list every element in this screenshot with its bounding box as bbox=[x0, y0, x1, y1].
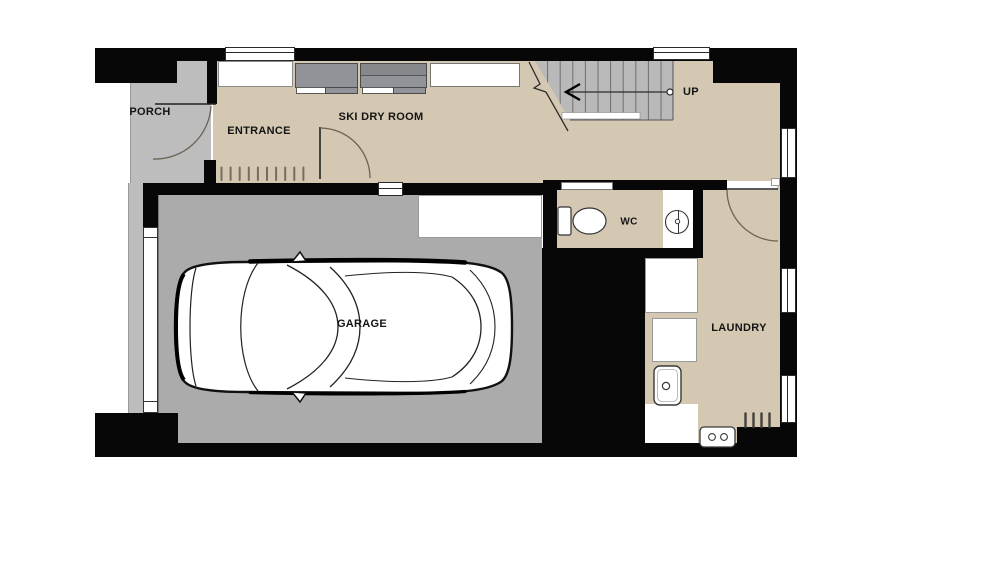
laundry-sink-drain bbox=[662, 382, 669, 389]
plan-linework bbox=[0, 0, 1000, 566]
staircase bbox=[529, 61, 673, 131]
car-mirror-top bbox=[292, 252, 306, 262]
car-mirror-bottom bbox=[292, 392, 306, 402]
toilet-bowl-icon bbox=[573, 208, 606, 234]
laundry-door-swing bbox=[727, 190, 778, 241]
stair-start-marker bbox=[667, 89, 673, 95]
wc-basin-drain bbox=[675, 219, 679, 223]
label-ski-dry-room: SKI DRY ROOM bbox=[339, 111, 424, 123]
label-laundry: LAUNDRY bbox=[711, 322, 766, 334]
label-entrance: ENTRANCE bbox=[227, 125, 291, 137]
stair-landing-strip bbox=[562, 113, 640, 120]
label-up: UP bbox=[683, 86, 699, 98]
laundry-step-hatch bbox=[746, 414, 770, 428]
floor-plan: PORCH ENTRANCE SKI DRY ROOM UP WC GARAGE… bbox=[0, 0, 1000, 566]
ski-room-door-swing bbox=[320, 128, 370, 178]
laundry-unit-icon bbox=[700, 427, 735, 447]
label-wc: WC bbox=[620, 217, 637, 228]
laundry-fixtures bbox=[654, 366, 770, 447]
toilet-tank-icon bbox=[558, 207, 571, 235]
label-garage: GARAGE bbox=[337, 318, 387, 330]
entrance-step-hatch bbox=[222, 168, 304, 181]
label-porch: PORCH bbox=[129, 106, 170, 118]
